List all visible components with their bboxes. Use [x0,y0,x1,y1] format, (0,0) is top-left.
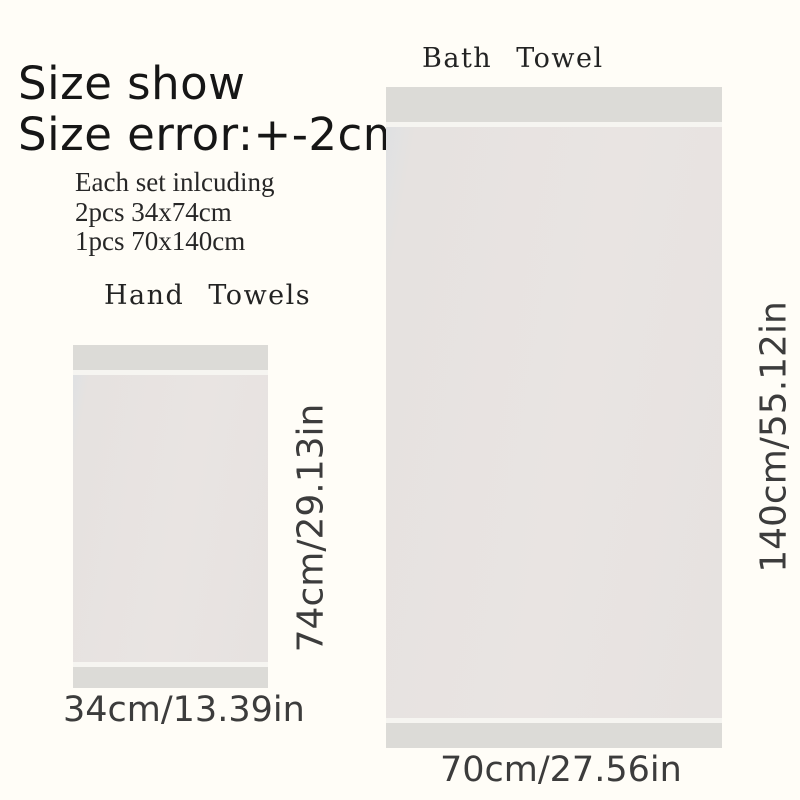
hand-towel-height-dimension: 74cm/29.13in [291,404,332,653]
page-title: Size show Size error:+-2cm [18,58,407,160]
bath-towel-height-dimension: 140cm/55.12in [754,301,795,573]
bath-towel-hem-bottom [386,723,722,748]
bath-towel-width-dimension: 70cm/27.56in [440,750,682,790]
title-line-size-error: Size error:+-2cm [18,109,407,160]
set-contents-heading: Each set inlcuding [75,168,274,198]
bath-towel-swatch [386,87,722,748]
hand-towel-hem-bottom [73,667,268,688]
set-contents-bath-towel: 1pcs 70x140cm [75,227,274,257]
bath-towel-hem-top [386,87,722,122]
bath-towel-body [386,127,722,718]
hand-towel-hem-top [73,345,268,370]
title-line-size-show: Size show [18,58,407,109]
set-contents-hand-towels: 2pcs 34x74cm [75,198,274,228]
hand-towel-width-dimension: 34cm/13.39in [63,690,305,730]
size-chart-image: Size show Size error:+-2cm Each set inlc… [0,0,800,800]
hand-towel-body [73,375,268,662]
set-contents: Each set inlcuding 2pcs 34x74cm 1pcs 70x… [75,168,274,257]
bath-towel-label: Bath Towel [422,44,604,74]
hand-towels-label: Hand Towels [104,281,311,311]
hand-towel-swatch [73,345,268,688]
